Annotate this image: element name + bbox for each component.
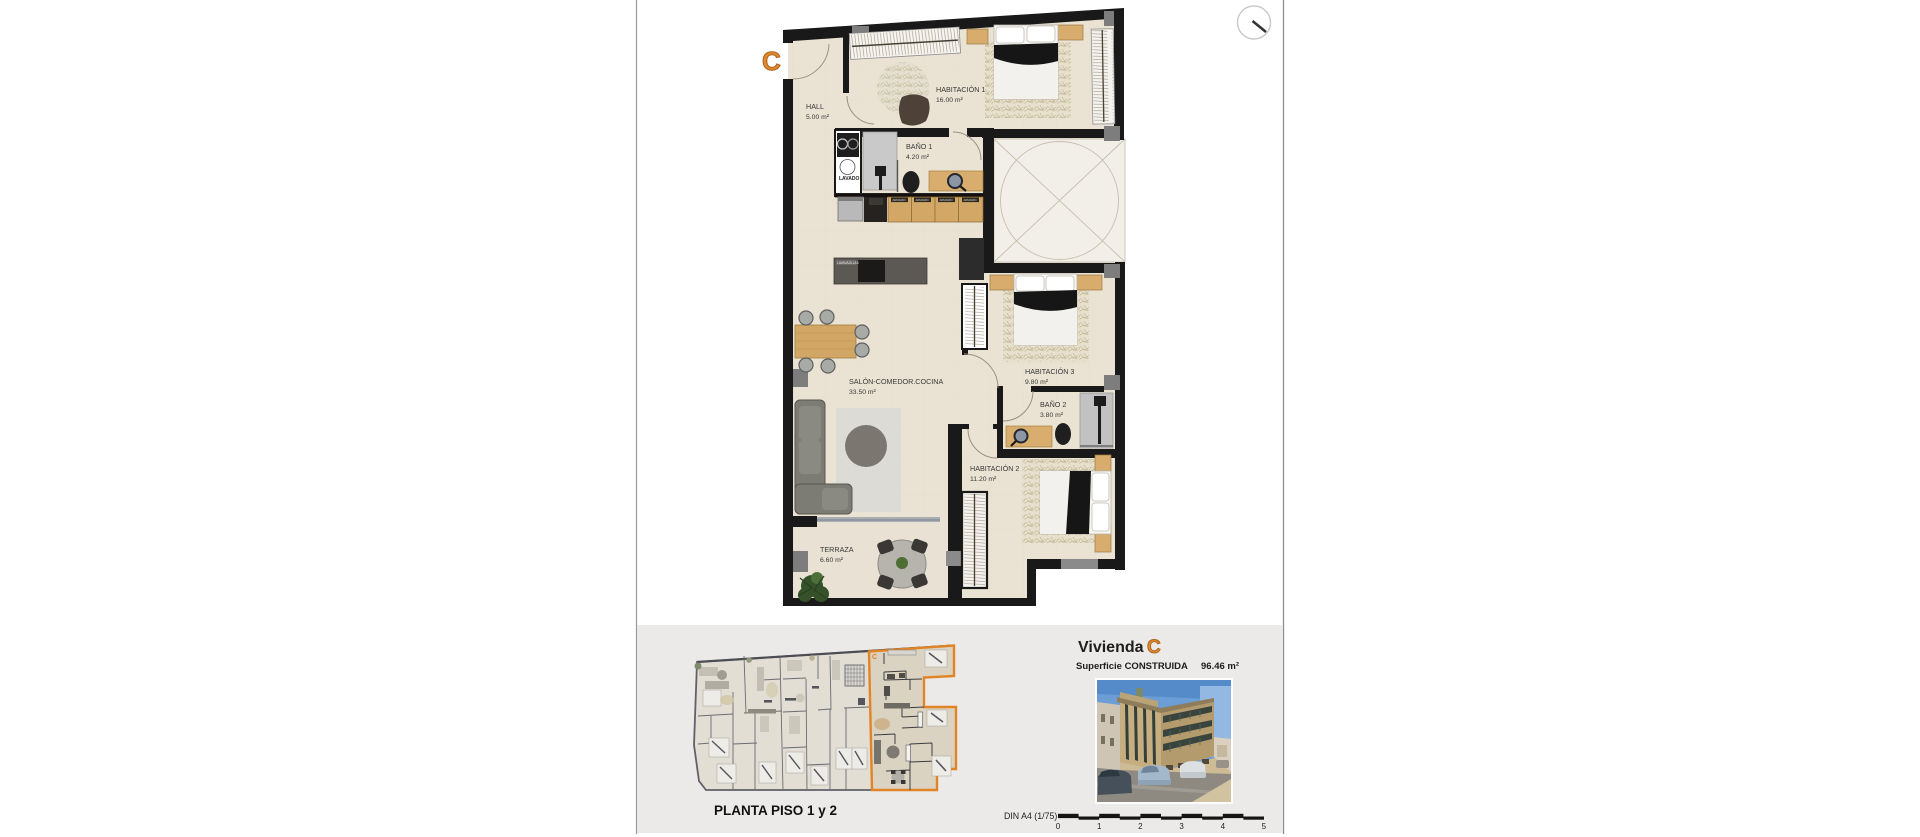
svg-text:Vivienda: Vivienda [1078,639,1144,656]
svg-text:16.00 m²: 16.00 m² [936,97,964,104]
svg-text:PLANTA PISO 1 y 2: PLANTA PISO 1 y 2 [714,803,837,818]
svg-text:6.60 m²: 6.60 m² [820,557,844,564]
svg-text:BAÑO 2: BAÑO 2 [1040,400,1066,409]
svg-text:11.20 m²: 11.20 m² [970,476,997,483]
svg-text:0: 0 [1056,822,1061,831]
svg-text:ARMARIO: ARMARIO [964,198,978,202]
svg-text:HABITACIÓN 3: HABITACIÓN 3 [1025,367,1074,376]
svg-text:HABITACIÓN 2: HABITACIÓN 2 [970,464,1019,473]
svg-text:HALL: HALL [806,102,824,111]
svg-text:4.20 m²: 4.20 m² [906,154,930,161]
svg-text:TERRAZA: TERRAZA [820,545,854,554]
svg-text:3: 3 [1179,822,1184,831]
svg-text:2: 2 [1138,822,1143,831]
svg-text:C: C [872,654,877,661]
svg-text:DIN A4 (1/75): DIN A4 (1/75) [1004,811,1057,821]
svg-text:BAÑO 1: BAÑO 1 [906,142,932,151]
svg-text:ARMARIO: ARMARIO [893,198,907,202]
svg-text:LAVADO: LAVADO [839,176,859,182]
svg-text:HABITACIÓN 1: HABITACIÓN 1 [936,85,985,94]
svg-text:5: 5 [1262,822,1267,831]
svg-text:96.46 m²: 96.46 m² [1201,661,1239,672]
svg-text:ARMARIO: ARMARIO [916,198,930,202]
svg-text:1: 1 [1097,822,1102,831]
svg-text:4: 4 [1221,822,1226,831]
svg-text:LAVAVAJILLAS: LAVAVAJILLAS [837,261,859,265]
svg-text:ARMARIO: ARMARIO [940,198,954,202]
svg-text:33.50 m²: 33.50 m² [849,389,877,396]
svg-text:9.80 m²: 9.80 m² [1025,379,1049,386]
svg-text:Superficie CONSTRUIDA: Superficie CONSTRUIDA [1076,661,1188,672]
svg-text:5.00 m²: 5.00 m² [806,114,830,121]
svg-text:3.80 m²: 3.80 m² [1040,412,1064,419]
svg-text:SALÓN-COMEDOR.COCINA: SALÓN-COMEDOR.COCINA [849,377,943,386]
svg-text:C: C [762,46,781,76]
svg-text:C: C [1147,637,1161,658]
